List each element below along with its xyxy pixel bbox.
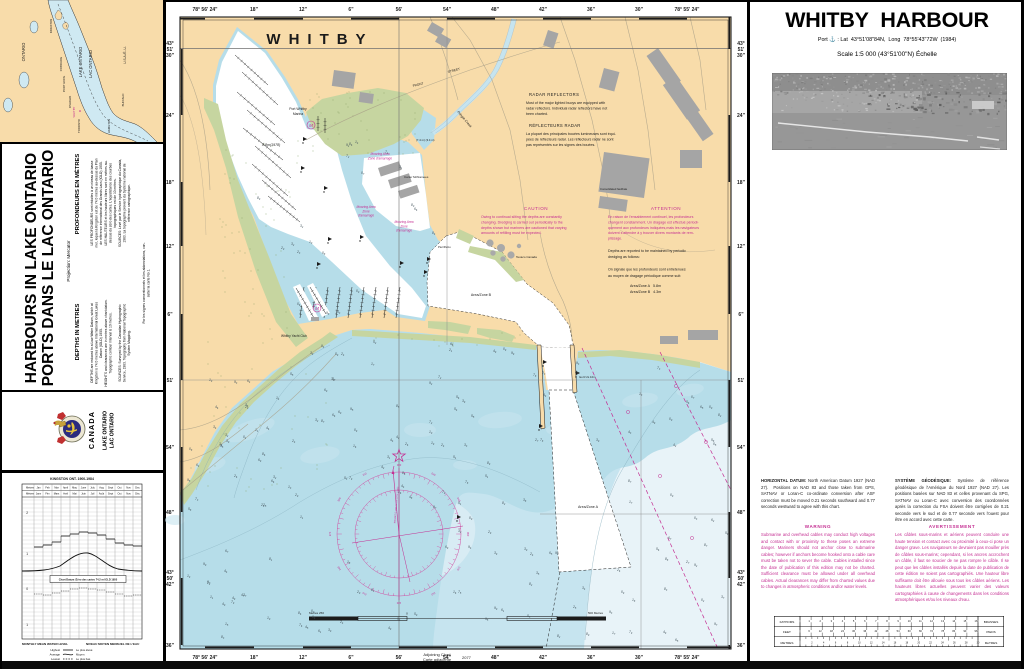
- svg-text:18": 18": [250, 655, 259, 661]
- svg-text:Mars: Mars: [54, 493, 60, 496]
- svg-text:42": 42": [166, 582, 175, 588]
- svg-text:PORT HOPE: PORT HOPE: [62, 76, 66, 93]
- svg-text:42": 42": [539, 7, 548, 13]
- svg-text:Avril: Avril: [63, 493, 68, 496]
- svg-text:RÉFLECTEURS RADAR: RÉFLECTEURS RADAR: [529, 123, 581, 128]
- svg-text:Feb: Feb: [45, 487, 50, 490]
- svg-text:Highest: Highest: [51, 648, 61, 652]
- svg-text:Jan: Jan: [36, 487, 41, 490]
- svg-text:Zone d'amarrage: Zone d'amarrage: [367, 156, 392, 160]
- svg-text:Owing to continual silting the: Owing to continual silting the depths ar…: [481, 215, 562, 219]
- svg-text:54": 54": [166, 445, 175, 451]
- svg-text:FEET: FEET: [783, 630, 791, 634]
- svg-text:78° 55' 24": 78° 55' 24": [674, 7, 700, 13]
- svg-text:36": 36": [166, 643, 175, 649]
- svg-text:12": 12": [299, 7, 308, 13]
- svg-text:6": 6": [738, 312, 744, 318]
- svg-text:radar reflectors. Individual: radar reflectors. Individual radar refle…: [526, 107, 607, 111]
- svg-text:1: 1: [26, 623, 28, 627]
- svg-text:doivent s'attendre à y trouver: doivent s'attendre à y trouver divers mo…: [608, 231, 695, 235]
- svg-text:Consolidated fastfrate: Consolidated fastfrate: [600, 187, 628, 191]
- svg-text:U.S.A./É.-U.: U.S.A./É.-U.: [122, 46, 127, 63]
- svg-text:54": 54": [737, 445, 746, 451]
- svg-text:48": 48": [737, 510, 746, 516]
- svg-text:56': 56': [396, 655, 403, 661]
- svg-text:changing. Dredging is carried: changing. Dredging is carried out period…: [481, 220, 563, 224]
- svg-text:Projection: Mercator: Projection: Mercator: [66, 240, 71, 282]
- svg-text:For les signes conventionnels: For les signes conventionnels et les abb…: [142, 242, 146, 323]
- svg-text:dredging as follows:: dredging as follows:: [608, 255, 640, 259]
- svg-text:Mar: Mar: [54, 487, 58, 490]
- svg-text:Août: Août: [99, 493, 104, 496]
- svg-text:180: 180: [396, 601, 401, 605]
- svg-text:18": 18": [166, 180, 175, 186]
- svg-text:MèTRES: MèTRES: [985, 641, 998, 645]
- svg-text:de référence international des: de référence international des Grands La…: [99, 161, 103, 244]
- svg-text:been charted.: been charted.: [526, 112, 548, 116]
- svg-text:Metres: Metres: [26, 486, 35, 490]
- svg-text:OSHAWA: OSHAWA: [68, 96, 72, 108]
- svg-text:RADAR REFLECTORS: RADAR REFLECTORS: [529, 92, 579, 97]
- svg-text:changent constamment. Un draga: changent constamment. Un dragage est eff…: [608, 220, 699, 224]
- svg-text:Mètres: Mètres: [26, 492, 35, 496]
- svg-text:MONTHLY MEAN WATER LEVEL: MONTHLY MEAN WATER LEVEL: [22, 642, 68, 646]
- svg-text:COBOURG: COBOURG: [59, 57, 63, 71]
- svg-text:pas représentés sur les signes: pas représentés sur les signes des bouée…: [526, 143, 595, 147]
- svg-text:18": 18": [250, 7, 259, 13]
- svg-text:METRES: METRES: [781, 641, 794, 645]
- svg-text:HEIGHTS and clearances are in: HEIGHTS and clearances are in metres abo…: [104, 299, 108, 386]
- svg-text:Le plus élevé: Le plus élevé: [76, 648, 93, 652]
- svg-text:ONTARIO: ONTARIO: [21, 42, 26, 62]
- svg-text:51': 51': [167, 378, 174, 384]
- svg-text:NIVEAU MOYEN MENSUEL DE L'EAU: NIVEAU MOYEN MENSUEL DE L'EAU: [86, 642, 139, 646]
- svg-text:Carte adjacente: Carte adjacente: [423, 657, 452, 662]
- svg-text:topographiques est de 10 mètre: topographiques est de 10 mètres.: [113, 178, 117, 227]
- svg-text:12": 12": [299, 655, 308, 661]
- svg-text:sulter la carte No 1.: sulter la carte No 1.: [146, 269, 150, 298]
- svg-text:DEPTHS are reduced to a Low Wa: DEPTHS are reduced to a Low Water Datum,…: [90, 303, 94, 382]
- svg-text:0: 0: [26, 587, 28, 591]
- svg-text:PIEDS: PIEDS: [986, 630, 995, 634]
- svg-text:12": 12": [166, 244, 175, 250]
- svg-text:Area/Zone A 5.8m: Area/Zone A 5.8m: [630, 284, 661, 288]
- svg-text:500 Metres: 500 Metres: [588, 611, 604, 615]
- svg-text:LES PROFONDEURS sont réduites: LES PROFONDEURS sont réduites à un nivea…: [90, 160, 94, 245]
- svg-text:d'amarrage: d'amarrage: [396, 229, 412, 233]
- svg-text:M: M: [309, 123, 313, 128]
- svg-text:Lowest: Lowest: [51, 657, 60, 661]
- svg-text:Topographic contour interval i: Topographic contour interval is 10 metre…: [108, 312, 112, 373]
- svg-text:18": 18": [737, 180, 746, 186]
- svg-text:au moyen de dragage périodique: au moyen de dragage périodique comme sui…: [608, 274, 681, 278]
- svg-text:Juin: Juin: [81, 493, 86, 496]
- svg-text:36": 36": [587, 7, 596, 13]
- svg-text:Sept: Sept: [108, 487, 113, 490]
- svg-text:Port Whitby: Port Whitby: [289, 107, 307, 111]
- svg-text:48": 48": [166, 510, 175, 516]
- svg-text:Dec: Dec: [135, 487, 140, 490]
- svg-text:Marina: Marina: [293, 112, 303, 116]
- svg-text:LES HAUTEURS et les hauteurs l: LES HAUTEURS et les hauteurs libres sont…: [104, 160, 108, 245]
- svg-text:SOURCES: Surveyed by the Canad: SOURCES: Surveyed by the Canadian Hydrog…: [118, 304, 122, 382]
- svg-text:En raison de l'ensablement con: En raison de l'ensablement continuel, le…: [608, 215, 694, 219]
- svg-text:Service, 1983. Topography from: Service, 1983. Topography from National …: [122, 303, 126, 382]
- svg-text:KINGSTON: KINGSTON: [49, 19, 53, 34]
- svg-text:amounts of refilling must be e: amounts of refilling must be expected.: [481, 231, 542, 235]
- svg-text:Pier/Pelco: Pier/Pelco: [438, 245, 451, 249]
- svg-text:51': 51': [738, 378, 745, 384]
- svg-text:Sept: Sept: [108, 493, 113, 496]
- svg-text:Average: Average: [50, 653, 61, 657]
- svg-text:pées de réflecteurs radar. Les: pées de réflecteurs radar. Les réflecteu…: [526, 138, 614, 142]
- svg-text:1: 1: [26, 552, 28, 556]
- svg-text:Iso R 2s 10m: Iso R 2s 10m: [579, 375, 596, 379]
- svg-text:Chart Datum /Zéro des cartes: Chart Datum /Zéro des cartes 74.2 m IGLD…: [59, 578, 118, 582]
- svg-text:On signale que les profondeurs: On signale que les profondeurs sont entr…: [608, 268, 686, 272]
- svg-text:Datum (IGLD) 1955.: Datum (IGLD) 1955.: [99, 328, 103, 358]
- svg-text:System Mapping.: System Mapping.: [127, 330, 131, 356]
- svg-text:270: 270: [328, 531, 332, 536]
- svg-text:48": 48": [491, 7, 500, 13]
- svg-text:depths shown but mariners are: depths shown but mariners are cautioned …: [481, 226, 567, 230]
- svg-text:BUFFALO: BUFFALO: [121, 93, 125, 107]
- svg-text:PROFONDEURS EN MÈTRES: PROFONDEURS EN MÈTRES: [73, 154, 81, 235]
- svg-text:Depths are reported to be main: Depths are reported to be maintained by …: [608, 249, 686, 253]
- svg-text:LAKE ONTARIO: LAKE ONTARIO: [78, 46, 83, 77]
- svg-text:June: June: [81, 487, 87, 490]
- svg-text:référence cartographique.: référence cartographique.: [127, 184, 131, 222]
- svg-text:6": 6": [348, 655, 354, 661]
- svg-text:24": 24": [737, 113, 746, 119]
- svg-text:Nov: Nov: [126, 487, 131, 490]
- svg-text:36": 36": [587, 655, 596, 661]
- svg-text:2077: 2077: [462, 655, 472, 660]
- svg-text:2: 2: [26, 511, 28, 515]
- svg-text:La plupart des principales bou: La plupart des principales bouées lumine…: [526, 132, 617, 136]
- svg-text:WHITBY: WHITBY: [266, 31, 373, 48]
- svg-text:Oct: Oct: [118, 487, 122, 490]
- svg-text:mer, lequel à Kingston est de: mer, lequel à Kingston est de 74.0 mètre…: [94, 158, 98, 247]
- svg-text:78° 56' 24": 78° 56' 24": [192, 7, 218, 13]
- svg-text:plissage.: plissage.: [608, 237, 622, 241]
- svg-text:CAUTION: CAUTION: [524, 206, 548, 211]
- svg-text:Janv: Janv: [36, 493, 42, 496]
- svg-text:30": 30": [635, 655, 644, 661]
- svg-text:Area/Zone A: Area/Zone A: [578, 505, 599, 509]
- svg-text:DEPTHS IN METRES: DEPTHS IN METRES: [75, 304, 81, 361]
- svg-text:Nov: Nov: [126, 493, 131, 496]
- svg-text:30": 30": [166, 53, 175, 59]
- svg-text:Area/Zone B: Area/Zone B: [471, 293, 492, 297]
- svg-text:Most of the major lighted: Most of the major lighted buoys are equi…: [526, 101, 605, 105]
- svg-text:WHITBY: WHITBY: [72, 106, 76, 117]
- svg-text:000: 000: [397, 463, 402, 467]
- svg-text:Juil: Juil: [91, 493, 95, 496]
- svg-text:Moyen: Moyen: [76, 653, 85, 657]
- svg-text:Kingston is 74.0 metres above: Kingston is 74.0 metres above Internatio…: [94, 302, 98, 385]
- svg-text:42": 42": [737, 582, 746, 588]
- svg-text:d'amarrage: d'amarrage: [358, 214, 374, 218]
- svg-text:July: July: [90, 487, 95, 490]
- svg-text:PORTS DANS LE LAC ONTARIO: PORTS DANS LE LAC ONTARIO: [40, 150, 57, 387]
- svg-text:LAC ONTARIO: LAC ONTARIO: [88, 49, 93, 78]
- svg-text:HAMILTON: HAMILTON: [107, 119, 111, 133]
- svg-text:KINGSTON ONT. 1900-1984: KINGSTON ONT. 1900-1984: [50, 477, 94, 481]
- svg-text:56': 56': [396, 7, 403, 13]
- svg-text:36": 36": [737, 643, 746, 649]
- svg-text:24": 24": [166, 113, 175, 119]
- svg-text:090: 090: [466, 532, 470, 537]
- svg-text:(7.4 m) (3.4 m): (7.4 m) (3.4 m): [416, 138, 435, 142]
- svg-text:Aug: Aug: [99, 487, 104, 490]
- svg-text:dessus du zéro des cartes. L'é: dessus du zéro des cartes. L'équidistanc…: [108, 163, 112, 244]
- svg-text:Fév: Fév: [45, 493, 50, 496]
- svg-text:Mai: Mai: [72, 493, 76, 496]
- svg-text:42": 42": [539, 655, 548, 661]
- svg-text:6": 6": [348, 7, 354, 13]
- svg-text:Carter McNamees: Carter McNamees: [404, 175, 429, 179]
- svg-text:48": 48": [491, 655, 500, 661]
- svg-text:Area/Zone B 4.3m: Area/Zone B 4.3m: [630, 290, 661, 294]
- svg-text:30": 30": [737, 53, 746, 59]
- svg-text:Déc: Déc: [135, 493, 140, 496]
- svg-text:12": 12": [737, 244, 746, 250]
- svg-text:78° 56' 24": 78° 56' 24": [192, 655, 218, 661]
- svg-text:BRASSES: BRASSES: [984, 620, 999, 624]
- svg-text:30": 30": [635, 7, 644, 13]
- svg-text:54": 54": [443, 7, 452, 13]
- svg-text:1.8m(1978): 1.8m(1978): [262, 143, 280, 147]
- svg-text:78° 55' 24": 78° 55' 24": [674, 655, 700, 661]
- svg-text:SOURCES: Levé par le Service h: SOURCES: Levé par le Service hydrographi…: [118, 159, 122, 247]
- svg-text:quement aux profondeurs indiqu: quement aux profondeurs indiquées,mais l…: [608, 226, 699, 230]
- svg-text:Texaco Canada: Texaco Canada: [516, 255, 537, 259]
- svg-text:M: M: [315, 306, 319, 311]
- svg-text:6": 6": [167, 312, 173, 318]
- svg-text:HARBOURS IN LAKE ONTARIO: HARBOURS IN LAKE ONTARIO: [23, 153, 40, 384]
- svg-text:Le plus bas: Le plus bas: [76, 657, 91, 661]
- svg-text:TORONTO: TORONTO: [77, 118, 81, 133]
- svg-text:May: May: [72, 487, 77, 490]
- svg-text:Whitby Yacht Club: Whitby Yacht Club: [281, 334, 307, 338]
- svg-text:ATTENTION: ATTENTION: [651, 206, 681, 211]
- svg-text:Oct: Oct: [118, 493, 122, 496]
- svg-text:April: April: [63, 487, 68, 490]
- svg-text:1983. La topographie provient: 1983. La topographie provient du Système…: [122, 163, 126, 242]
- svg-text:FATHOMS: FATHOMS: [780, 620, 795, 624]
